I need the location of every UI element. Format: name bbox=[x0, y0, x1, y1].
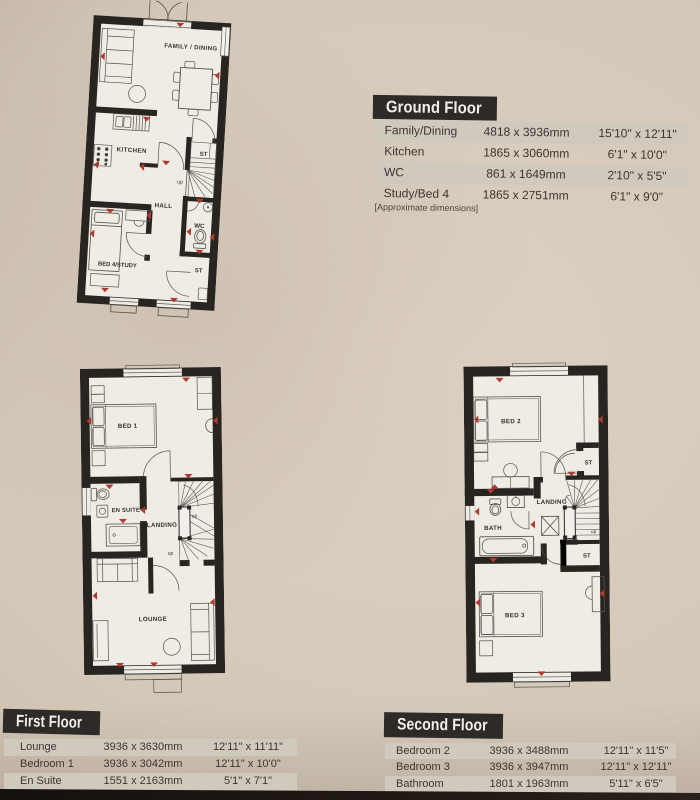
svg-text:BED 1: BED 1 bbox=[117, 422, 137, 429]
svg-text:ST: ST bbox=[199, 152, 207, 158]
svg-text:BED 3: BED 3 bbox=[505, 612, 525, 619]
svg-text:LOUNGE: LOUNGE bbox=[138, 615, 166, 622]
svg-text:up: up bbox=[191, 513, 197, 519]
svg-text:WC: WC bbox=[193, 222, 204, 230]
svg-text:BATH: BATH bbox=[484, 524, 502, 531]
svg-text:BED 2: BED 2 bbox=[501, 418, 521, 425]
svg-text:up: up bbox=[167, 550, 173, 556]
svg-text:up: up bbox=[591, 529, 597, 534]
svg-text:ST: ST bbox=[585, 460, 593, 466]
svg-text:EN SUITE: EN SUITE bbox=[111, 507, 139, 513]
svg-text:HALL: HALL bbox=[154, 202, 172, 210]
svg-text:up: up bbox=[176, 179, 182, 185]
svg-text:LANDING: LANDING bbox=[537, 498, 567, 505]
svg-text:ST: ST bbox=[194, 268, 202, 274]
svg-text:LANDING: LANDING bbox=[146, 521, 176, 528]
svg-text:ST: ST bbox=[583, 553, 591, 559]
